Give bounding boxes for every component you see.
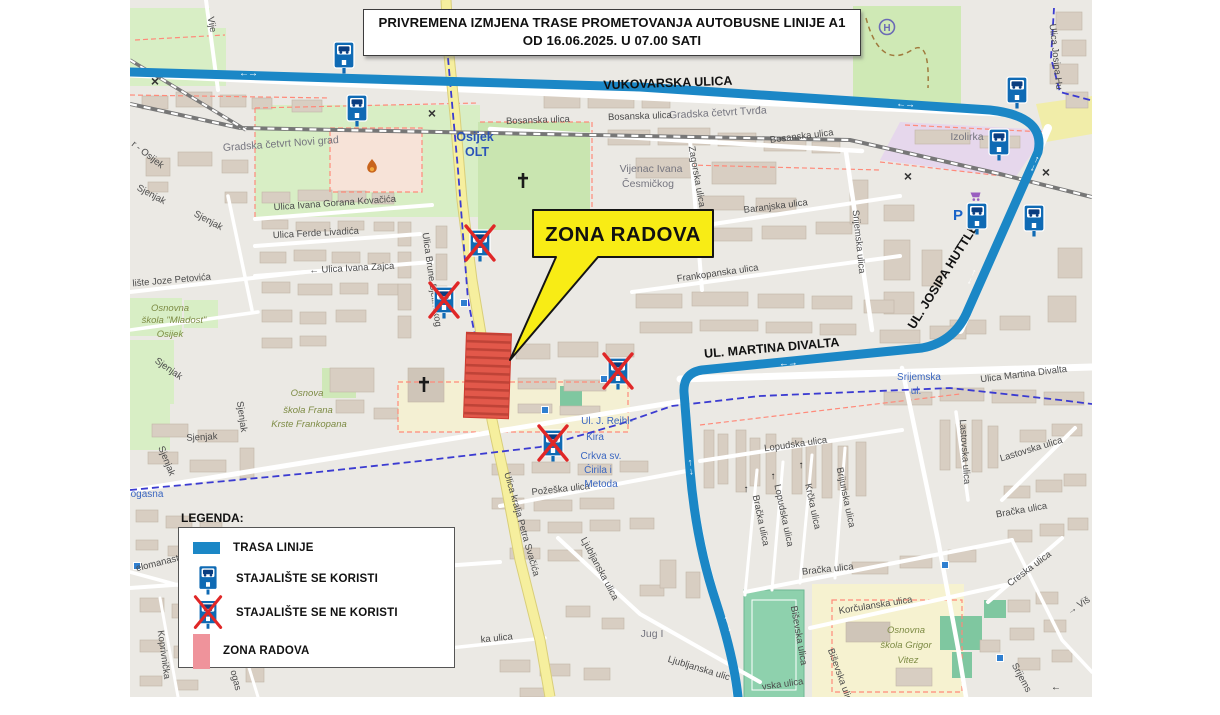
title-line-1: PRIVREMENA IZMJENA TRASE PROMETOVANJA AU… xyxy=(366,14,858,32)
map-screenshot: H xyxy=(0,0,1220,715)
legend-item-stop-closed: STAJALIŠTE SE NE KORISTI xyxy=(193,595,444,631)
work-zone-swatch xyxy=(193,634,210,669)
district-label: Česmičkog xyxy=(622,177,674,190)
oneway-arrow: ↑ xyxy=(799,460,804,471)
legend-item-stop-used: STAJALIŠTE SE KORISTI xyxy=(193,562,444,595)
work-zone-area xyxy=(464,332,512,419)
route-direction-arrow: ←→ xyxy=(778,357,797,369)
bus-stop-marker xyxy=(942,562,949,569)
bus-stop-marker xyxy=(542,407,549,414)
district-label: Izolirka xyxy=(950,131,983,143)
school-label: škola "Mladost" xyxy=(142,315,207,326)
route-line-swatch xyxy=(193,542,220,554)
bus-stop-marker xyxy=(997,655,1004,662)
oneway-arrow: ↑ xyxy=(771,471,776,482)
street-label: Bosanska ulica xyxy=(506,114,571,127)
railway-crossing-mark: × xyxy=(151,73,159,89)
legend-item-label: STAJALIŠTE SE KORISTI xyxy=(236,573,378,585)
district-label: Vijenac Ivana xyxy=(620,163,683,175)
street-label: Sjenjak xyxy=(186,431,218,444)
legend-item-route: TRASA LINIJE xyxy=(193,534,444,562)
poi-label: ul. xyxy=(911,386,922,397)
bus-stop-closed-icon xyxy=(604,354,632,390)
school-label: škola Frana xyxy=(283,405,333,416)
bus-stop-icon xyxy=(193,562,223,595)
district-label: Jug I xyxy=(641,628,664,640)
poi-label: Srijemska xyxy=(897,372,941,383)
railway-crossing-mark: × xyxy=(1042,164,1050,180)
poi-label: ogasna xyxy=(131,489,164,500)
legend-heading: LEGENDA: xyxy=(181,511,244,525)
route-direction-arrow: ←→ xyxy=(239,68,257,79)
legend-item-label: ZONA RADOVA xyxy=(223,645,310,657)
railway-crossing-mark: × xyxy=(428,105,436,121)
place-label: OLT xyxy=(465,145,489,159)
school-label: Osnova xyxy=(291,388,324,399)
poi-label: Crkva sv. xyxy=(581,451,622,462)
title-box: PRIVREMENA IZMJENA TRASE PROMETOVANJA AU… xyxy=(363,9,861,56)
school-label: škola Grigor xyxy=(880,640,932,651)
school-label: Vitez xyxy=(898,655,919,666)
callout-label: ZONA RADOVA xyxy=(545,223,701,246)
route-direction-arrow: ←→ xyxy=(896,98,915,110)
poi-label: Ul. J. Reihl- xyxy=(581,416,633,427)
legend-item-zone: ZONA RADOVA xyxy=(193,631,444,671)
bus-stop-marker xyxy=(601,376,608,383)
bus-stop-closed-icon xyxy=(193,595,223,631)
oneway-arrow: ↑ xyxy=(744,484,749,495)
legend: TRASA LINIJE STAJALIŠTE SE KORISTI STAJA… xyxy=(178,527,455,668)
route-direction-arrow: ←→ xyxy=(685,457,698,476)
legend-item-label: TRASA LINIJE xyxy=(233,542,314,554)
oneway-arrow: ← xyxy=(1051,682,1061,693)
poi-label: Ćirila i xyxy=(584,463,612,476)
bus-stop-closed-icon xyxy=(539,426,567,462)
railway-crossing-mark: × xyxy=(904,168,912,184)
bus-stop-closed-icon xyxy=(430,283,458,319)
street-label: Bosanska ulica xyxy=(608,110,673,123)
poi-label: Metoda xyxy=(584,479,618,490)
bus-stop-marker xyxy=(461,300,468,307)
title-line-2: OD 16.06.2025. U 07.00 SATI xyxy=(366,32,858,50)
school-label: Krste Frankopana xyxy=(271,419,347,430)
place-label: Osijek xyxy=(456,130,494,144)
legend-item-label: STAJALIŠTE SE NE KORISTI xyxy=(236,607,398,619)
school-label: Osnovna xyxy=(151,303,189,314)
poi-label: Kira xyxy=(586,432,604,443)
bus-stop-closed-icon xyxy=(466,226,494,262)
parking-icon: P xyxy=(953,207,963,224)
school-label: Osijek xyxy=(157,329,185,340)
school-label: Osnovna xyxy=(887,625,925,636)
